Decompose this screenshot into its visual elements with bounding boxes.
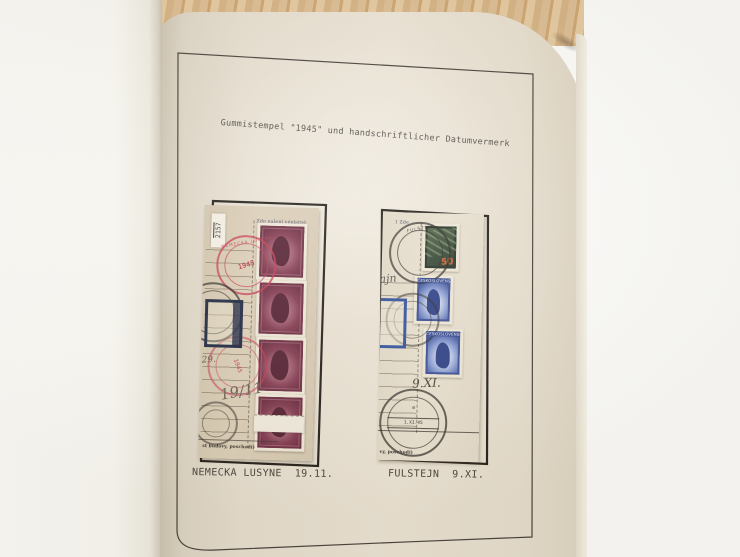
stamp-country-text: ČESKOSLOVENSKO [417,278,450,284]
exhibit-right-caption: FULSTEJN 9.XI. [388,468,484,480]
postmark-date: 1.XI.45 [387,417,438,429]
stamp-country-text: ČESKOSLOVENSKO [426,331,460,337]
postmark-ring-text: FULŠTEJN [406,223,434,233]
black-postmark-bottom: a 1.XI.45 [378,388,448,458]
handwritten-name: ajn [379,271,397,285]
stamp-blue-2: ČESKOSLOVENSKO [422,328,463,378]
exhibit-left-caption: NEMECKA LUSYNE 19.11. [192,467,333,480]
stamp-selvage [254,414,304,432]
photo-of-stamp-album: Gummistempel "1945" und handschriftliche… [0,0,740,557]
handwritten-note: 29. [201,355,216,366]
postmark-letter: a [412,405,415,411]
form-footer-text: vy, poschodí) [379,450,412,456]
registration-number: 2157 [214,222,222,238]
drawn-frames [0,0,740,557]
red-datestamp-year: 1945 [232,358,244,374]
form-footer-text: st budovy, poschodí) [202,444,255,450]
postal-form-left: 2157 Zde nalepí výplatné NEMECKA LUSYNE … [198,205,319,461]
stamp-design [258,283,303,335]
red-datestamp-year: 1945 [237,259,255,271]
navy-address-box [204,299,243,348]
handwritten-date: 9.XI. [412,376,441,391]
blue-address-box [377,298,407,349]
postal-form-right: 1 Zde 50 ČESKOSLOVENSKO ČESKOSLOVENSKO F… [377,212,484,462]
red-datestamp-ring-text: NEMECKA LUSYNE [221,235,273,249]
